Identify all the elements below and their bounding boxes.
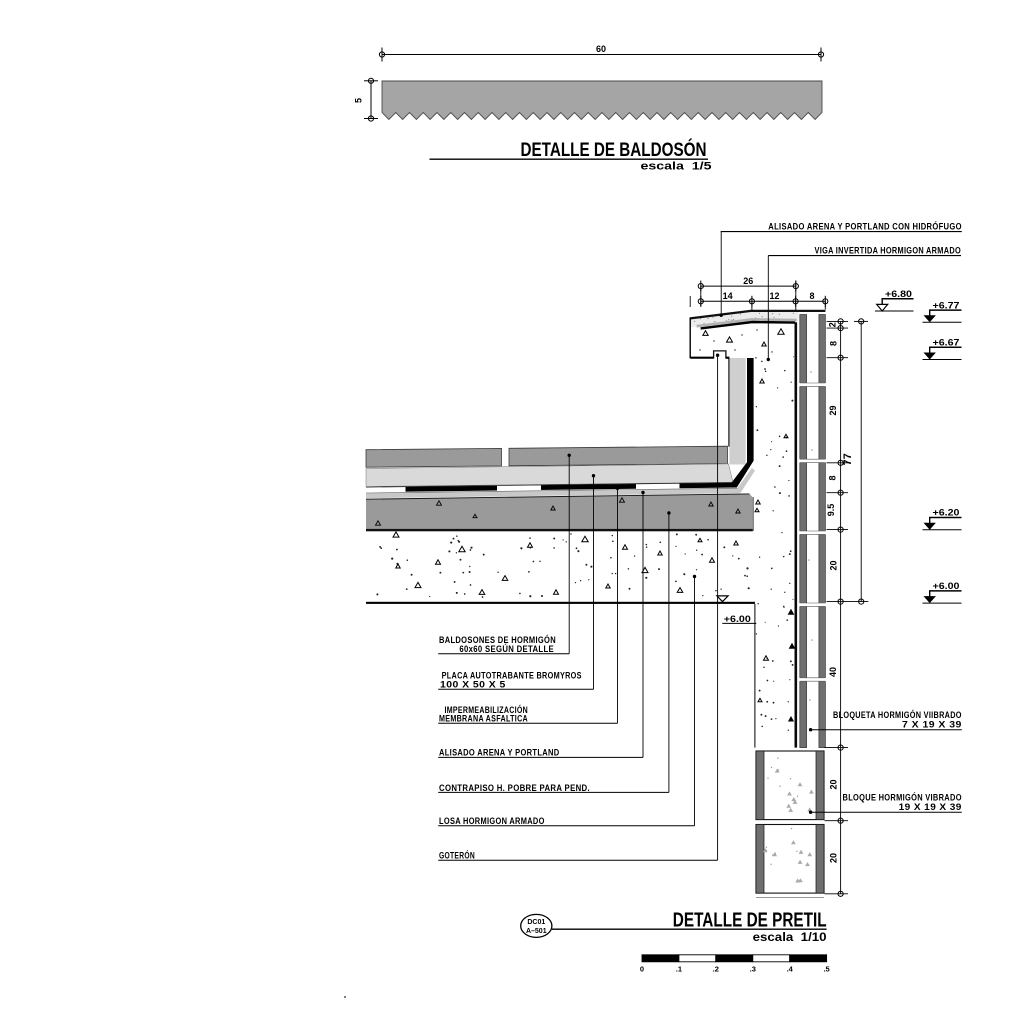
svg-text:+6.67: +6.67 bbox=[933, 338, 960, 348]
svg-text:.3: .3 bbox=[750, 965, 756, 974]
svg-text:0: 0 bbox=[640, 965, 644, 974]
svg-text:+6.77: +6.77 bbox=[933, 300, 960, 310]
svg-text:+6.00: +6.00 bbox=[933, 581, 960, 591]
svg-text:.1: .1 bbox=[676, 965, 682, 974]
svg-text:26: 26 bbox=[743, 276, 753, 286]
svg-text:+6.20: +6.20 bbox=[933, 508, 960, 518]
svg-text:VIGA INVERTIDA HORMIGON ARMADO: VIGA INVERTIDA HORMIGON ARMADO bbox=[815, 245, 962, 256]
svg-text:+6.80: +6.80 bbox=[885, 289, 912, 299]
svg-text:5: 5 bbox=[354, 98, 364, 103]
svg-text:20: 20 bbox=[829, 560, 839, 570]
svg-text:.2: .2 bbox=[713, 965, 719, 974]
svg-text:60: 60 bbox=[596, 44, 606, 54]
svg-text:8: 8 bbox=[809, 291, 814, 301]
svg-text:60x60 SEGÚN DETALLE: 60x60 SEGÚN DETALLE bbox=[459, 643, 554, 655]
svg-text:escala 1/5: escala 1/5 bbox=[641, 161, 712, 173]
svg-text:A–501: A–501 bbox=[526, 928, 547, 935]
svg-text:.4: .4 bbox=[787, 965, 794, 974]
svg-text:19 X 19 X 39: 19 X 19 X 39 bbox=[899, 802, 962, 813]
svg-text:ALISADO ARENA Y PORTLAND: ALISADO ARENA Y PORTLAND bbox=[439, 748, 560, 759]
svg-text:DETALLE DE PRETIL: DETALLE DE PRETIL bbox=[673, 910, 827, 932]
svg-text:29: 29 bbox=[828, 405, 838, 415]
svg-text:77: 77 bbox=[842, 453, 854, 465]
svg-text:+6.00: +6.00 bbox=[724, 614, 751, 624]
svg-text:7 X 19 X 39: 7 X 19 X 39 bbox=[902, 719, 962, 730]
svg-text:DC01: DC01 bbox=[527, 919, 545, 926]
svg-text:9.5: 9.5 bbox=[826, 504, 836, 517]
svg-text:40: 40 bbox=[828, 667, 838, 677]
svg-text:20: 20 bbox=[829, 779, 839, 789]
svg-text:14: 14 bbox=[723, 291, 733, 301]
svg-text:8: 8 bbox=[828, 475, 838, 480]
svg-text:escala 1/10: escala 1/10 bbox=[753, 930, 827, 944]
svg-text:ALISADO ARENA Y PORTLAND CON H: ALISADO ARENA Y PORTLAND CON HIDRÓFUGO bbox=[768, 220, 962, 232]
svg-text:DETALLE DE BALDOSÓN: DETALLE DE BALDOSÓN bbox=[521, 139, 707, 161]
svg-text:.5: .5 bbox=[823, 965, 829, 974]
svg-text:2: 2 bbox=[828, 322, 838, 327]
svg-text:12: 12 bbox=[769, 291, 779, 301]
svg-text:20: 20 bbox=[829, 853, 839, 863]
svg-text:8: 8 bbox=[829, 341, 839, 346]
